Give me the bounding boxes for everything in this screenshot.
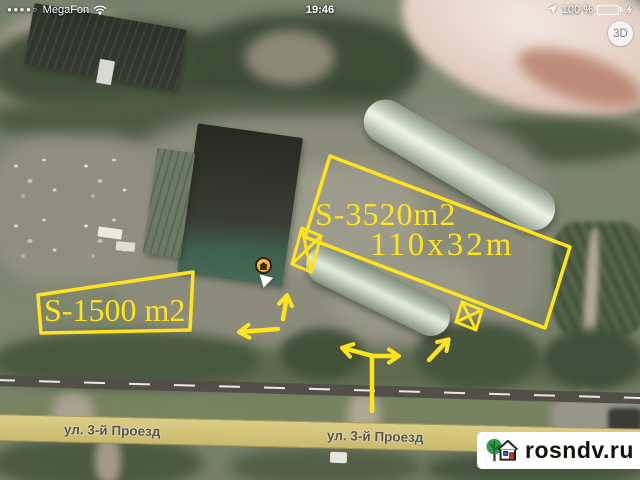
terrain-tree-1	[280, 328, 365, 380]
location-services-icon	[547, 4, 558, 15]
status-bar: ●●●●○ MegaFon 19:46 100 %	[0, 0, 640, 19]
watermark-badge: rosndv.ru	[477, 432, 640, 469]
terrain-scrapyard-speckles	[2, 148, 137, 273]
shed-white-small	[330, 452, 347, 464]
terrain-trees-bottom-b	[230, 448, 420, 480]
signal-strength-icon: ●●●●○	[7, 5, 39, 14]
truck-white-2	[116, 241, 136, 252]
street-label-center: ул. 3-й Проезд	[327, 428, 424, 445]
terrain-tree-4	[543, 328, 640, 390]
battery-percent: 100 %	[562, 4, 593, 16]
terrain-path-bottomleft	[95, 438, 121, 480]
watermark-site-name: rosndv.ru	[525, 437, 634, 464]
carrier-name: MegaFon	[43, 4, 89, 16]
pin-house-icon	[259, 262, 268, 270]
charging-bolt-icon	[626, 4, 633, 15]
ipad-screenshot: S-3520m2 110x32m S-1500 m2 ул. 3-й Проез…	[0, 0, 640, 480]
building-center-dark-roof	[177, 123, 303, 286]
terrain-clearing-top	[245, 30, 335, 85]
street-label-left: ул. 3-й Проезд	[64, 422, 161, 439]
wifi-icon	[93, 4, 107, 15]
status-left: ●●●●○ MegaFon	[7, 4, 107, 16]
property-pin	[255, 257, 272, 274]
watermark-logo-tree-house-icon	[484, 436, 520, 465]
map-3d-button[interactable]: 3D	[608, 21, 633, 46]
satellite-map[interactable]: S-3520m2 110x32m S-1500 m2 ул. 3-й Проез…	[0, 0, 640, 480]
status-right: 100 %	[547, 4, 633, 16]
battery-body	[597, 5, 619, 15]
battery-icon	[597, 5, 622, 15]
battery-nub	[620, 7, 622, 12]
